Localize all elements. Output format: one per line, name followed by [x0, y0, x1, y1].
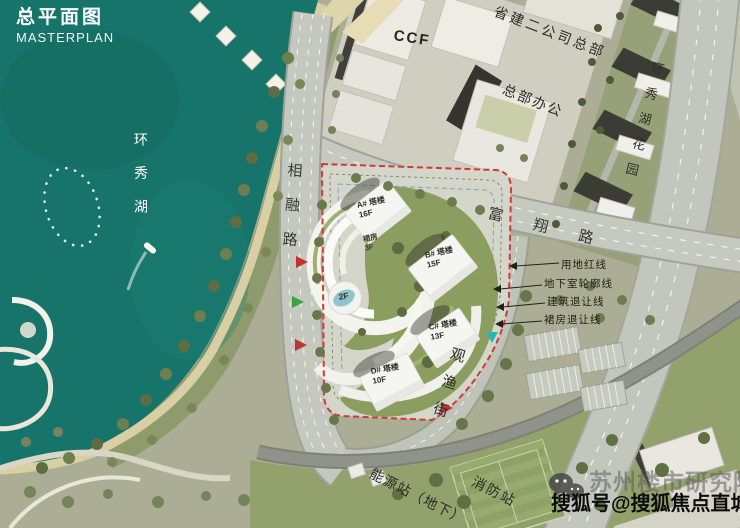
pavilion-label: 2F — [338, 291, 349, 301]
page-subtitle: MASTERPLAN — [16, 31, 114, 44]
lake-label: 环秀湖 — [134, 132, 148, 233]
site-plan-canvas — [0, 0, 740, 528]
page-title: 总平面图 — [16, 8, 104, 27]
masterplan-rendering: 总平面图 MASTERPLAN 环秀湖 相融路 富翔路 观渔街 环秀湖花园 省建… — [0, 0, 740, 528]
callout-basement-outline: 地下室轮廓线 — [544, 279, 613, 290]
callout-red-line: 用地红线 — [561, 260, 607, 271]
watermark-studio: 苏州楼市研究院 — [589, 471, 740, 494]
callout-building-setback: 建筑退让线 — [547, 297, 605, 308]
callout-podium-setback: 裙房退让线 — [544, 315, 602, 326]
watermark-sohu-account: 搜狐号@搜狐焦点直城站 — [551, 494, 740, 514]
